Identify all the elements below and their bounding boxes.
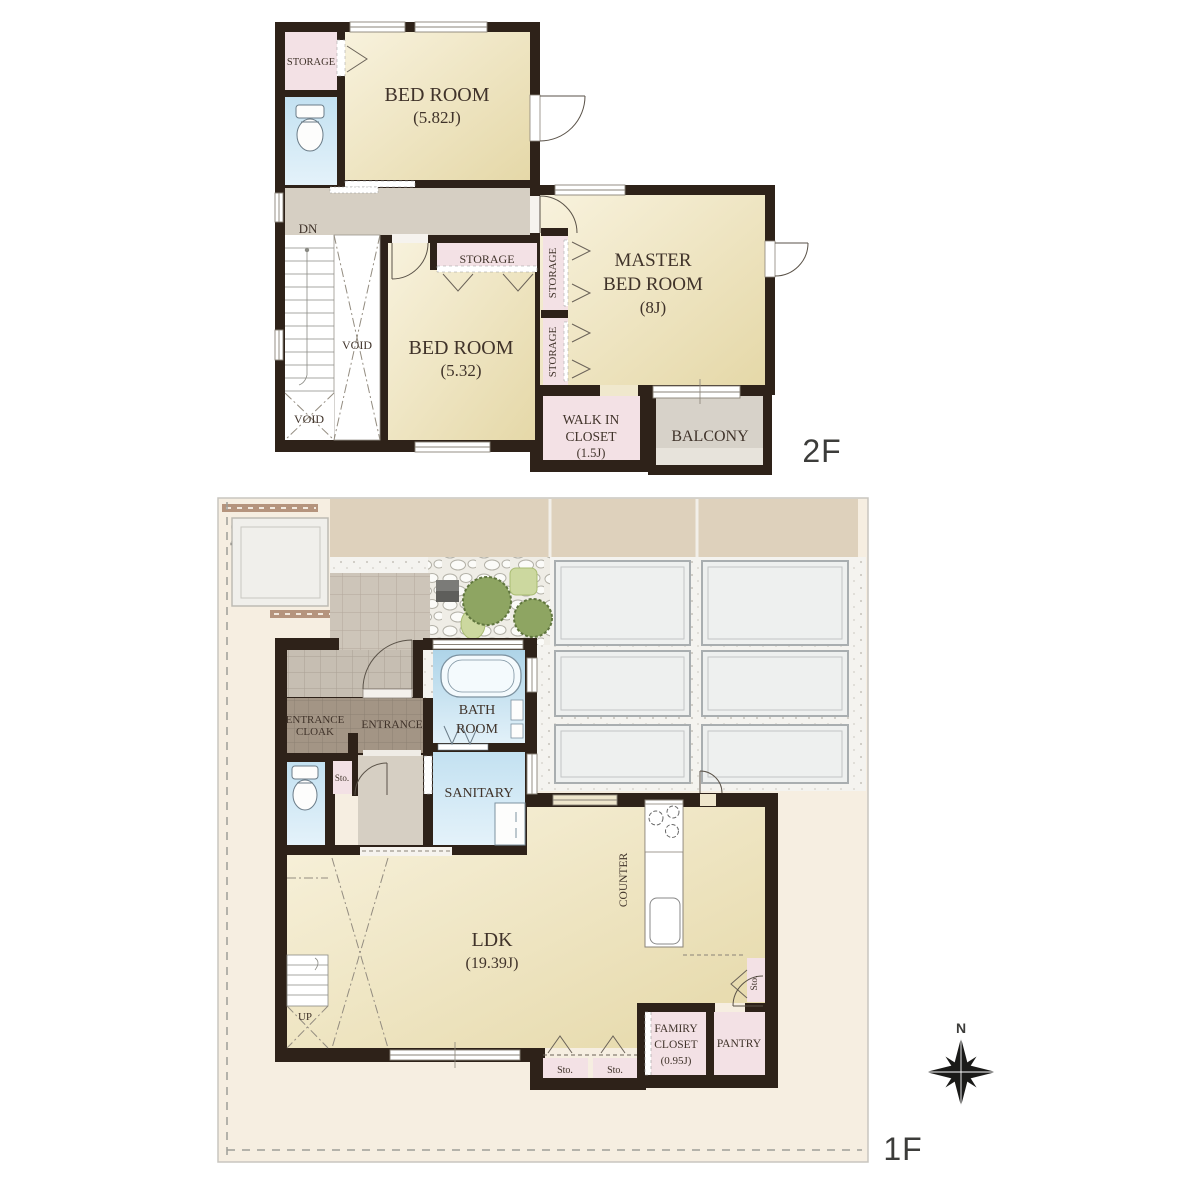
famiry-label-1: FAMIRY: [654, 1023, 698, 1035]
master-casement-window: [765, 241, 808, 277]
bedroom1-size-label: (5.82J): [413, 108, 461, 127]
storage-top-left-label: STORAGE: [287, 57, 335, 68]
kitchen-counter: [645, 800, 683, 947]
sto-bottom2-label: Sto.: [607, 1065, 623, 1076]
hall-closet-strip: [330, 187, 378, 193]
bedroom2-size-label: (5.32): [440, 361, 481, 380]
post-box-icon: [436, 580, 459, 591]
wic-label-1: WALK IN: [563, 412, 620, 427]
toilet-icon-1f: [292, 766, 318, 810]
entrance-cloak-label-1: ENTRANCE: [286, 714, 345, 726]
floor2-label: 2F: [802, 433, 841, 469]
storage-v1-label: STORAGE: [547, 247, 559, 298]
entrance-cloak-label-2: CLOAK: [296, 726, 334, 738]
ldk-label: LDK: [471, 929, 513, 951]
sanitary-label: SANITARY: [445, 786, 514, 801]
bath-counter-icon: [511, 700, 523, 738]
wic-opening: [600, 385, 638, 396]
post-box-icon: [436, 591, 459, 602]
master-label-1: MASTER: [614, 250, 691, 271]
storage-mid-label: STORAGE: [459, 252, 514, 266]
stairs-up: [287, 955, 328, 1006]
bedroom1-sliding-door: [345, 181, 415, 187]
hall-1f: [358, 755, 423, 845]
sink-icon: [650, 898, 680, 944]
compass-north-label: N: [956, 1020, 966, 1036]
bedroom1-room: [345, 32, 530, 180]
floor-plan-page: 電柱: [0, 0, 1200, 1200]
famiry-size-label: (0.95J): [661, 1055, 692, 1067]
sto-bottom1-label: Sto.: [557, 1065, 573, 1076]
famiry-label-2: CLOSET: [654, 1039, 697, 1051]
ldk-size-label: (19.39J): [466, 955, 519, 972]
floor-plan-drawing: 電柱: [0, 0, 1200, 1200]
balcony-gutter: [656, 448, 763, 465]
floor1-label: 1F: [883, 1131, 922, 1167]
bath-label-1: BATH: [459, 703, 496, 718]
dn-label: DN: [299, 221, 318, 236]
bedroom1-label: BED ROOM: [384, 84, 489, 106]
toilet-icon-2f: [296, 105, 324, 151]
sto-hall-label: Sto.: [335, 773, 349, 783]
approach-tiles: [330, 573, 430, 650]
stairs-down-area: [285, 235, 334, 393]
sanitary-door: [424, 756, 432, 794]
parking-spaces: [555, 561, 848, 783]
entrance-label: ENTRANCE: [361, 719, 422, 731]
void-bottom-label: VOID: [294, 412, 324, 426]
parking-pad: [232, 518, 328, 606]
counter-label: COUNTER: [618, 853, 630, 908]
house-2f: STORAGE BED ROOM (5.82J) DN VOID VOID ST…: [275, 22, 808, 475]
washbasin-icon: [495, 803, 525, 845]
up-label: UP: [298, 1011, 312, 1023]
storage-v2-label: STORAGE: [547, 326, 559, 377]
balcony-label: BALCONY: [671, 428, 749, 445]
compass: N: [926, 1020, 996, 1106]
sto-kitchen-label: Sto.: [750, 975, 760, 990]
bath-label-2: ROOM: [456, 722, 499, 737]
shrub-icon: [510, 568, 537, 595]
pantry-label: PANTRY: [717, 1038, 762, 1050]
bedroom2-label: BED ROOM: [408, 337, 513, 359]
tree-icon: [514, 599, 552, 637]
hallway-2f: [285, 188, 530, 235]
wic-label-2: CLOSET: [565, 429, 617, 444]
master-size-label: (8J): [640, 298, 666, 317]
bedroom1-casement-window: [530, 95, 585, 141]
master-label-2: BED ROOM: [603, 274, 703, 295]
road-strip: [330, 499, 858, 557]
void-center-label: VOID: [342, 338, 372, 352]
bathtub-icon: [441, 655, 521, 697]
wic-size-label: (1.5J): [577, 446, 606, 460]
fc-sliding-door: [645, 1012, 651, 1075]
tree-icon: [463, 577, 511, 625]
